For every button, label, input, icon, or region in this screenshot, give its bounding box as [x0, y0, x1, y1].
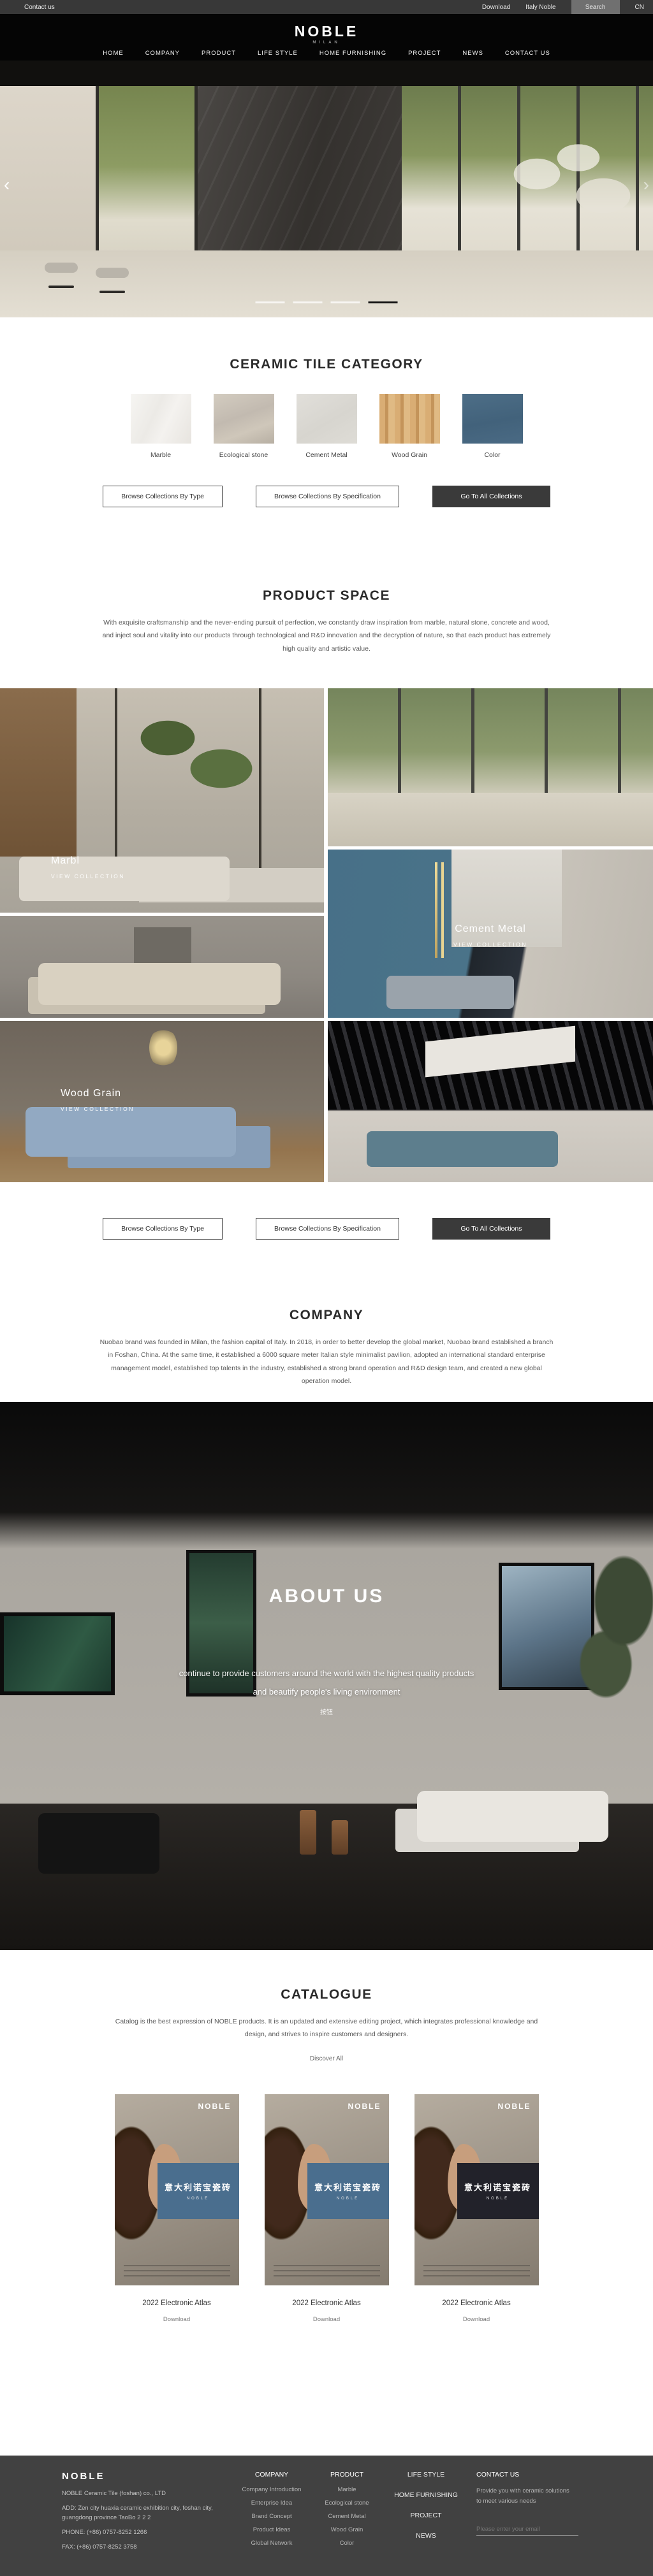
category-item-cement-metal[interactable]: Cement Metal: [297, 394, 357, 459]
nav-product[interactable]: PRODUCT: [202, 50, 236, 57]
about-us-section: ABOUT US continue to provide customers a…: [0, 1402, 653, 1950]
photo-wall-art: [134, 927, 191, 966]
collection-name: Cement Metal: [453, 923, 527, 935]
catalogue-download-link[interactable]: Download: [265, 2316, 389, 2323]
language-toggle-cn[interactable]: CN: [635, 4, 644, 11]
category-item-marble[interactable]: Marble: [131, 394, 191, 459]
collection-name: Marbl: [51, 855, 125, 867]
about-photo-black-armchair: [38, 1813, 159, 1874]
nav-life-style[interactable]: LIFE STYLE: [258, 50, 298, 57]
download-link[interactable]: Download: [482, 4, 510, 11]
collection-name: Wood Grain: [61, 1088, 135, 1099]
hero-photo-floor: [0, 250, 653, 317]
carousel-dot-1[interactable]: [256, 301, 285, 303]
hero-photo-window-small: [96, 86, 198, 264]
wood-grain-photo: [0, 1021, 324, 1182]
hero-photo-stool: [45, 263, 78, 273]
footer: NOBLE NOBLE Ceramic Tile (foshan) co., L…: [0, 2456, 653, 2576]
italy-noble-link[interactable]: Italy Noble: [525, 4, 555, 11]
footer-contact-header[interactable]: CONTACT US: [476, 2471, 610, 2478]
category-section-title: CERAMIC TILE CATEGORY: [0, 317, 653, 372]
footer-link[interactable]: Brand Concept: [234, 2513, 309, 2520]
poster-footer-lines: [423, 2265, 530, 2276]
carousel-pagination: [256, 301, 398, 303]
nav-news[interactable]: NEWS: [462, 50, 483, 57]
about-us-text: continue to provide customers around the…: [0, 1665, 653, 1701]
footer-column-company: COMPANY Company Introduction Enterprise …: [234, 2471, 309, 2576]
footer-column-header[interactable]: COMPANY: [234, 2471, 309, 2478]
browse-by-specification-button[interactable]: Browse Collections By Specification: [256, 1218, 399, 1240]
poster-footer-lines: [124, 2265, 230, 2276]
carousel-prev-arrow[interactable]: ‹: [4, 176, 10, 194]
catalogue-title: CATALOGUE: [0, 1950, 653, 2002]
go-to-all-collections-button[interactable]: Go To All Collections: [432, 1218, 550, 1240]
carousel-dot-2[interactable]: [293, 301, 323, 303]
footer-address: ADD: Zen city huaxia ceramic exhibition …: [62, 2504, 234, 2522]
browse-by-type-button[interactable]: Browse Collections By Type: [103, 486, 223, 507]
category-item-ecological-stone[interactable]: Ecological stone: [214, 394, 274, 459]
nav-company[interactable]: COMPANY: [145, 50, 180, 57]
footer-nav-links: LIFE STYLE HOME FURNISHING PROJECT NEWS: [385, 2471, 467, 2576]
terrace-photo: [328, 688, 653, 846]
hero-carousel: ‹ ›: [0, 61, 653, 317]
poster-chinese-title: 意大利诺宝瓷砖: [314, 2181, 381, 2193]
catalogue-card-3: NOBLE 意大利诺宝瓷砖 NOBLE 2022 Electronic Atla…: [415, 2094, 539, 2323]
footer-phone: PHONE: (+86) 0757-8252 1266: [62, 2528, 234, 2537]
footer-link[interactable]: Marble: [309, 2486, 385, 2493]
catalogue-cover-3[interactable]: NOBLE 意大利诺宝瓷砖 NOBLE: [415, 2094, 539, 2285]
showroom-photo: [0, 688, 324, 913]
carousel-next-arrow[interactable]: ›: [643, 176, 649, 194]
browse-by-type-button[interactable]: Browse Collections By Type: [103, 1218, 223, 1240]
poster-brand-logo: NOBLE: [348, 2102, 381, 2111]
catalogue-card-2: NOBLE 意大利诺宝瓷砖 NOBLE 2022 Electronic Atla…: [265, 2094, 389, 2323]
footer-nav-project[interactable]: PROJECT: [385, 2512, 467, 2519]
about-us-title: ABOUT US: [0, 1586, 653, 1607]
nav-home[interactable]: HOME: [103, 50, 124, 57]
photo-blue-sofa: [26, 1107, 236, 1157]
ceramic-tile-category-section: CERAMIC TILE CATEGORY Marble Ecological …: [0, 317, 653, 539]
nav-contact-us[interactable]: CONTACT US: [505, 50, 550, 57]
about-line-2: and beautify people's living environment: [0, 1683, 653, 1702]
slat-wall-photo: [328, 1021, 653, 1182]
category-label: Wood Grain: [379, 451, 440, 459]
poster-chinese-subtitle: NOBLE: [337, 2197, 359, 2201]
logo-subtitle: MILAN: [0, 41, 653, 45]
about-photo-side-table: [332, 1820, 348, 1855]
footer-nav-life-style[interactable]: LIFE STYLE: [385, 2471, 467, 2478]
category-item-color[interactable]: Color: [462, 394, 523, 459]
about-photo-white-sofa: [417, 1791, 608, 1842]
about-button[interactable]: 按钮: [0, 1707, 653, 1716]
lounge-photo: [0, 916, 324, 1018]
hero-photo-ceiling: [0, 61, 653, 86]
photo-stone-floor: [328, 793, 653, 846]
poster-brand-logo: NOBLE: [498, 2102, 531, 2111]
space-image-cement-metal-room[interactable]: Cement Metal VIEW COLLECTION: [328, 850, 653, 1018]
category-label: Color: [462, 451, 523, 459]
poster-footer-lines: [274, 2265, 380, 2276]
catalogue-section: CATALOGUE Catalog is the best expression…: [0, 1950, 653, 2456]
photo-grey-sofa: [386, 976, 514, 1009]
browse-by-specification-button[interactable]: Browse Collections By Specification: [256, 486, 399, 507]
catalogue-download-link[interactable]: Download: [415, 2316, 539, 2323]
color-swatch: [462, 394, 523, 444]
poster-color-panel: 意大利诺宝瓷砖 NOBLE: [307, 2163, 389, 2219]
photo-wall-lamp: [149, 1027, 177, 1068]
poster-brand-logo: NOBLE: [198, 2102, 231, 2111]
product-space-grid: Marbl VIEW COLLECTION Wood Grain VIEW CO…: [0, 688, 653, 1182]
catalogue-card-1: NOBLE 意大利诺宝瓷砖 NOBLE 2022 Electronic Atla…: [115, 2094, 239, 2323]
carousel-dot-3[interactable]: [331, 301, 360, 303]
collection-buttons-row: Browse Collections By Type Browse Collec…: [0, 486, 653, 507]
poster-color-panel: 意大利诺宝瓷砖 NOBLE: [457, 2163, 539, 2219]
photo-teal-sofa: [367, 1131, 558, 1167]
wood-grain-collection-label[interactable]: Wood Grain VIEW COLLECTION: [61, 1088, 135, 1112]
ecological-stone-swatch: [214, 394, 274, 444]
go-to-all-collections-button[interactable]: Go To All Collections: [432, 486, 550, 507]
cement-metal-swatch: [297, 394, 357, 444]
catalogue-cover-1[interactable]: NOBLE 意大利诺宝瓷砖 NOBLE: [115, 2094, 239, 2285]
catalogue-item-title: 2022 Electronic Atlas: [115, 2299, 239, 2307]
marble-swatch: [131, 394, 191, 444]
footer-link[interactable]: Product Ideas: [234, 2526, 309, 2533]
product-space-description: With exquisite craftsmanship and the nev…: [97, 616, 556, 655]
photo-wood-panel: [0, 688, 77, 857]
poster-color-panel: 意大利诺宝瓷砖 NOBLE: [158, 2163, 239, 2219]
catalogue-item-title: 2022 Electronic Atlas: [415, 2299, 539, 2307]
nav-project[interactable]: PROJECT: [408, 50, 441, 57]
footer-link[interactable]: Ecological stone: [309, 2500, 385, 2507]
space-image-terrace[interactable]: [328, 688, 653, 846]
marble-collection-label[interactable]: Marbl VIEW COLLECTION: [51, 855, 125, 879]
category-row: Marble Ecological stone Cement Metal Woo…: [0, 394, 653, 459]
product-space-intro: PRODUCT SPACE With exquisite craftsmansh…: [0, 539, 653, 688]
view-collection-link[interactable]: VIEW COLLECTION: [453, 941, 527, 948]
footer-column-list: Marble Ecological stone Cement Metal Woo…: [309, 2486, 385, 2547]
cement-metal-collection-label[interactable]: Cement Metal VIEW COLLECTION: [453, 923, 527, 948]
catalogue-posters-row: NOBLE 意大利诺宝瓷砖 NOBLE 2022 Electronic Atla…: [0, 2094, 653, 2323]
footer-link[interactable]: Color: [309, 2540, 385, 2547]
footer-company-name: NOBLE Ceramic Tile (foshan) co., LTD: [62, 2489, 234, 2498]
category-item-wood-grain[interactable]: Wood Grain: [379, 394, 440, 459]
footer-link[interactable]: Wood Grain: [309, 2526, 385, 2533]
category-label: Cement Metal: [297, 451, 357, 459]
space-image-beige-lounge[interactable]: [0, 916, 324, 1018]
topbar-right-group: Download Italy Noble Search CN: [482, 0, 644, 14]
main-nav: HOME COMPANY PRODUCT LIFE STYLE HOME FUR…: [0, 50, 653, 57]
view-collection-link[interactable]: VIEW COLLECTION: [61, 1106, 135, 1112]
logo[interactable]: NOBLE: [0, 14, 653, 40]
footer-column-list: Company Introduction Enterprise Idea Bra…: [234, 2486, 309, 2547]
discover-all-link[interactable]: Discover All: [310, 2055, 343, 2062]
footer-nav-home-furnishing[interactable]: HOME FURNISHING: [385, 2491, 467, 2499]
poster-chinese-title: 意大利诺宝瓷砖: [464, 2181, 531, 2193]
company-section-title: COMPANY: [0, 1275, 653, 1323]
view-collection-link[interactable]: VIEW COLLECTION: [51, 873, 125, 879]
footer-contact-block: CONTACT US Provide you with ceramic solu…: [476, 2471, 610, 2576]
nav-home-furnishing[interactable]: HOME FURNISHING: [319, 50, 386, 57]
footer-logo: NOBLE: [62, 2471, 234, 2482]
wood-grain-swatch: [379, 394, 440, 444]
search-button[interactable]: Search: [571, 0, 620, 14]
catalogue-download-link[interactable]: Download: [115, 2316, 239, 2323]
photo-plants: [128, 707, 261, 809]
space-image-slat-wall-room[interactable]: [328, 1021, 653, 1182]
photo-gold-lamp: [435, 862, 437, 958]
company-section: COMPANY Nuobao brand was founded in Mila…: [0, 1275, 653, 1402]
about-photo-side-table: [300, 1810, 316, 1855]
company-description: Nuobao brand was founded in Milan, the f…: [97, 1336, 556, 1388]
hero-photo-wall: [0, 86, 96, 277]
footer-link[interactable]: Cement Metal: [309, 2513, 385, 2520]
catalogue-item-title: 2022 Electronic Atlas: [265, 2299, 389, 2307]
contact-us-link[interactable]: Contact us: [24, 4, 55, 11]
footer-nav-news[interactable]: NEWS: [385, 2532, 467, 2540]
page: Contact us Download Italy Noble Search C…: [0, 0, 653, 2576]
poster-chinese-title: 意大利诺宝瓷砖: [165, 2181, 231, 2193]
space-image-wood-grain-room[interactable]: Wood Grain VIEW COLLECTION: [0, 1021, 324, 1182]
poster-chinese-subtitle: NOBLE: [487, 2197, 509, 2201]
about-line-1: continue to provide customers around the…: [0, 1665, 653, 1683]
newsletter-email-input[interactable]: [476, 2523, 578, 2536]
hero-photo-garden-rocks: [487, 131, 653, 239]
footer-link[interactable]: Global Network: [234, 2540, 309, 2547]
footer-link[interactable]: Company Introduction: [234, 2486, 309, 2493]
product-space-title: PRODUCT SPACE: [0, 539, 653, 604]
category-label: Marble: [131, 451, 191, 459]
catalogue-cover-2[interactable]: NOBLE 意大利诺宝瓷砖 NOBLE: [265, 2094, 389, 2285]
footer-column-product: PRODUCT Marble Ecological stone Cement M…: [309, 2471, 385, 2576]
footer-fax: FAX: (+86) 0757-8252 3758: [62, 2543, 234, 2552]
about-photo-ceiling: [0, 1402, 653, 1549]
carousel-dot-4-active[interactable]: [369, 301, 398, 303]
footer-link[interactable]: Enterprise Idea: [234, 2500, 309, 2507]
catalogue-description: Catalog is the best expression of NOBLE …: [106, 2015, 547, 2041]
hero-photo-stool: [96, 268, 129, 278]
top-utility-bar: Contact us Download Italy Noble Search C…: [0, 0, 653, 14]
category-label: Ecological stone: [214, 451, 274, 459]
photo-sofa: [38, 963, 281, 1005]
footer-company-info: NOBLE NOBLE Ceramic Tile (foshan) co., L…: [62, 2471, 234, 2576]
site-header: NOBLE MILAN HOME COMPANY PRODUCT LIFE ST…: [0, 14, 653, 61]
poster-chinese-subtitle: NOBLE: [187, 2197, 209, 2201]
collection-buttons-row-2: Browse Collections By Type Browse Collec…: [0, 1182, 653, 1275]
space-image-marble-showroom[interactable]: Marbl VIEW COLLECTION: [0, 688, 324, 913]
footer-column-header[interactable]: PRODUCT: [309, 2471, 385, 2478]
footer-contact-text: Provide you with ceramic solutions to me…: [476, 2486, 572, 2507]
